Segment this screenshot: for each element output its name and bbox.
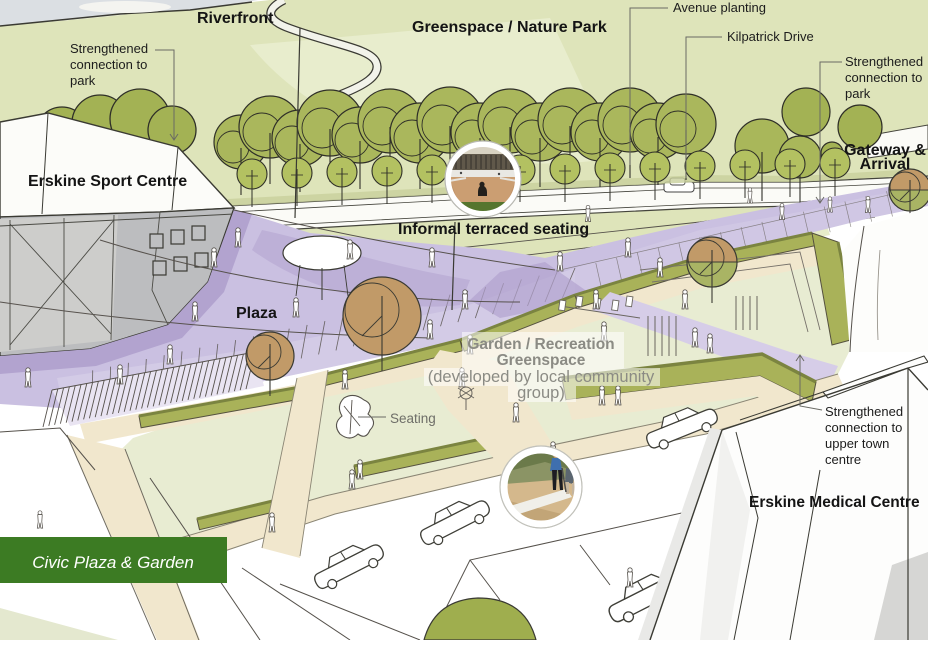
svg-text:Strengthened: Strengthened	[845, 54, 923, 69]
svg-text:Greenspace / Nature Park: Greenspace / Nature Park	[412, 19, 607, 36]
svg-text:centre: centre	[825, 452, 861, 467]
svg-text:Erskine Medical Centre: Erskine Medical Centre	[749, 494, 920, 511]
svg-text:Erskine Sport Centre: Erskine Sport Centre	[28, 173, 187, 190]
svg-text:Avenue planting: Avenue planting	[673, 0, 766, 15]
svg-text:Riverfront: Riverfront	[197, 10, 274, 27]
svg-text:Greenspace: Greenspace	[497, 352, 586, 369]
svg-text:Plaza: Plaza	[236, 305, 277, 322]
svg-text:Civic Plaza & Garden: Civic Plaza & Garden	[32, 553, 194, 572]
svg-text:Seating: Seating	[390, 411, 436, 426]
svg-text:connection to: connection to	[845, 70, 922, 85]
svg-text:Strengthened: Strengthened	[70, 41, 148, 56]
svg-text:connection to: connection to	[825, 420, 902, 435]
svg-text:Arrival: Arrival	[860, 156, 911, 173]
svg-text:Garden / Recreation: Garden / Recreation	[467, 336, 614, 353]
svg-text:group): group)	[517, 384, 565, 402]
svg-text:Strengthened: Strengthened	[825, 404, 903, 419]
svg-text:Informal terraced seating: Informal terraced seating	[398, 221, 589, 238]
svg-text:park: park	[845, 86, 871, 101]
svg-text:Kilpatrick Drive: Kilpatrick Drive	[727, 29, 814, 44]
svg-text:upper town: upper town	[825, 436, 889, 451]
svg-text:connection to: connection to	[70, 57, 147, 72]
svg-text:park: park	[70, 73, 96, 88]
